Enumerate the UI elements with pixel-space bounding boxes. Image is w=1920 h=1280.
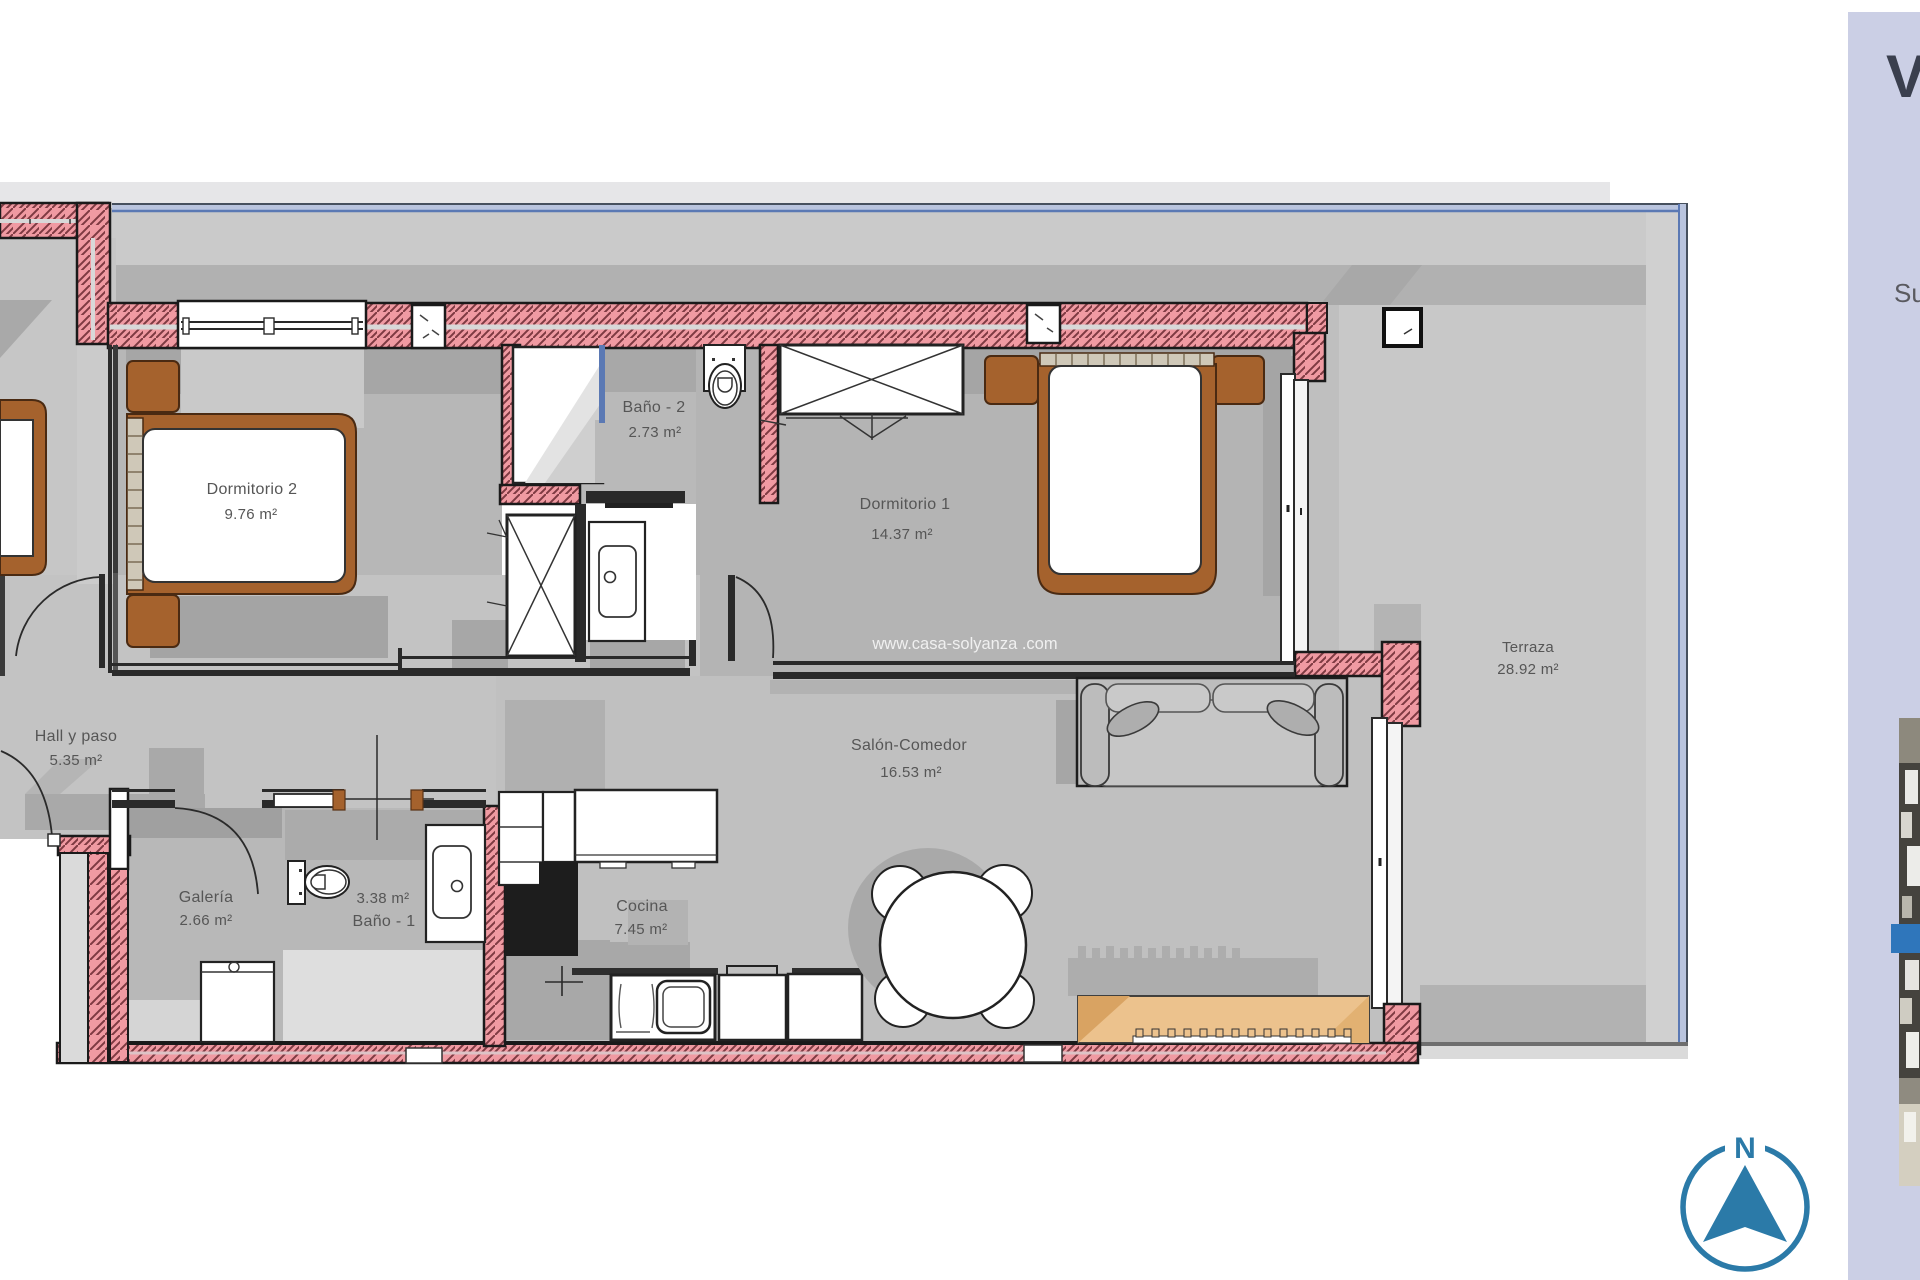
svg-text:16.53 m²: 16.53 m² [880, 764, 942, 781]
svg-text:Hall y paso: Hall y paso [35, 728, 117, 745]
svg-text:Terraza: Terraza [1502, 639, 1554, 656]
svg-text:5.35 m²: 5.35 m² [50, 752, 103, 769]
svg-text:Galería: Galería [179, 889, 234, 906]
svg-text:7.45 m²: 7.45 m² [615, 921, 668, 938]
svg-text:Baño - 2: Baño - 2 [623, 399, 686, 416]
svg-text:2.66 m²: 2.66 m² [180, 912, 233, 929]
svg-text:V: V [1886, 43, 1920, 110]
svg-text:2.73 m²: 2.73 m² [629, 424, 682, 441]
svg-text:www.casa-solyanza .com: www.casa-solyanza .com [871, 635, 1057, 653]
svg-text:9.76 m²: 9.76 m² [225, 506, 278, 523]
svg-text:Dormitorio 2: Dormitorio 2 [207, 481, 298, 498]
svg-text:Su: Su [1894, 278, 1920, 308]
svg-text:Baño - 1: Baño - 1 [353, 913, 416, 930]
svg-text:28.92 m²: 28.92 m² [1497, 661, 1559, 678]
svg-text:14.37 m²: 14.37 m² [871, 526, 933, 543]
svg-text:N: N [1734, 1132, 1756, 1165]
svg-text:Cocina: Cocina [616, 898, 668, 915]
svg-text:Salón-Comedor: Salón-Comedor [851, 737, 967, 754]
svg-text:3.38 m²: 3.38 m² [357, 890, 410, 907]
svg-text:Dormitorio 1: Dormitorio 1 [860, 496, 951, 513]
